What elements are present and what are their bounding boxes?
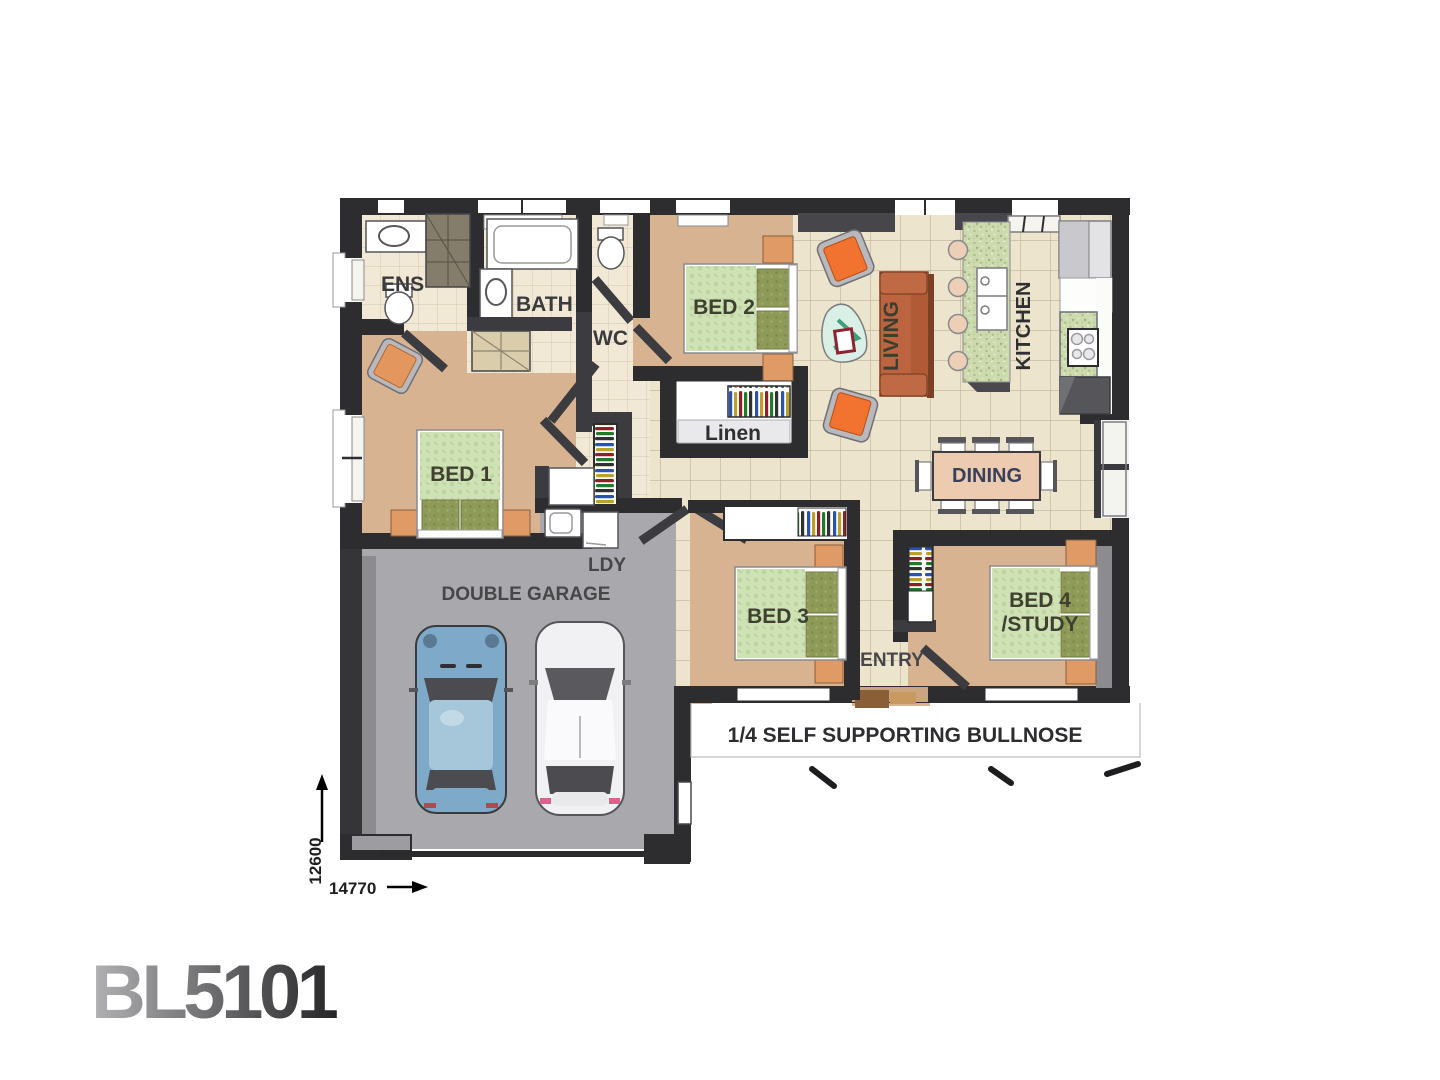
svg-text:14770: 14770: [329, 879, 376, 898]
svg-text:ENTRY: ENTRY: [860, 650, 924, 671]
svg-text:BATH: BATH: [516, 293, 573, 316]
svg-text:DOUBLE GARAGE: DOUBLE GARAGE: [442, 584, 611, 605]
svg-text:BED 1: BED 1: [430, 463, 492, 486]
svg-text:BED 3: BED 3: [747, 605, 809, 628]
svg-text:DINING: DINING: [952, 465, 1022, 487]
svg-text:BED 2: BED 2: [693, 296, 755, 319]
svg-text:ENS: ENS: [381, 273, 424, 296]
svg-text:Linen: Linen: [705, 422, 761, 445]
svg-text:BED 4: BED 4: [1009, 589, 1071, 612]
svg-text:1/4 SELF SUPPORTING BULLNOSE: 1/4 SELF SUPPORTING BULLNOSE: [728, 724, 1083, 747]
svg-text:12600: 12600: [306, 837, 325, 884]
svg-text:KITCHEN: KITCHEN: [1013, 282, 1035, 371]
svg-text:LIVING: LIVING: [880, 301, 903, 371]
svg-text:WC: WC: [593, 327, 628, 350]
svg-text:LDY: LDY: [588, 555, 626, 576]
svg-text:BL5101: BL5101: [91, 950, 338, 1035]
svg-text:/STUDY: /STUDY: [1001, 613, 1078, 636]
